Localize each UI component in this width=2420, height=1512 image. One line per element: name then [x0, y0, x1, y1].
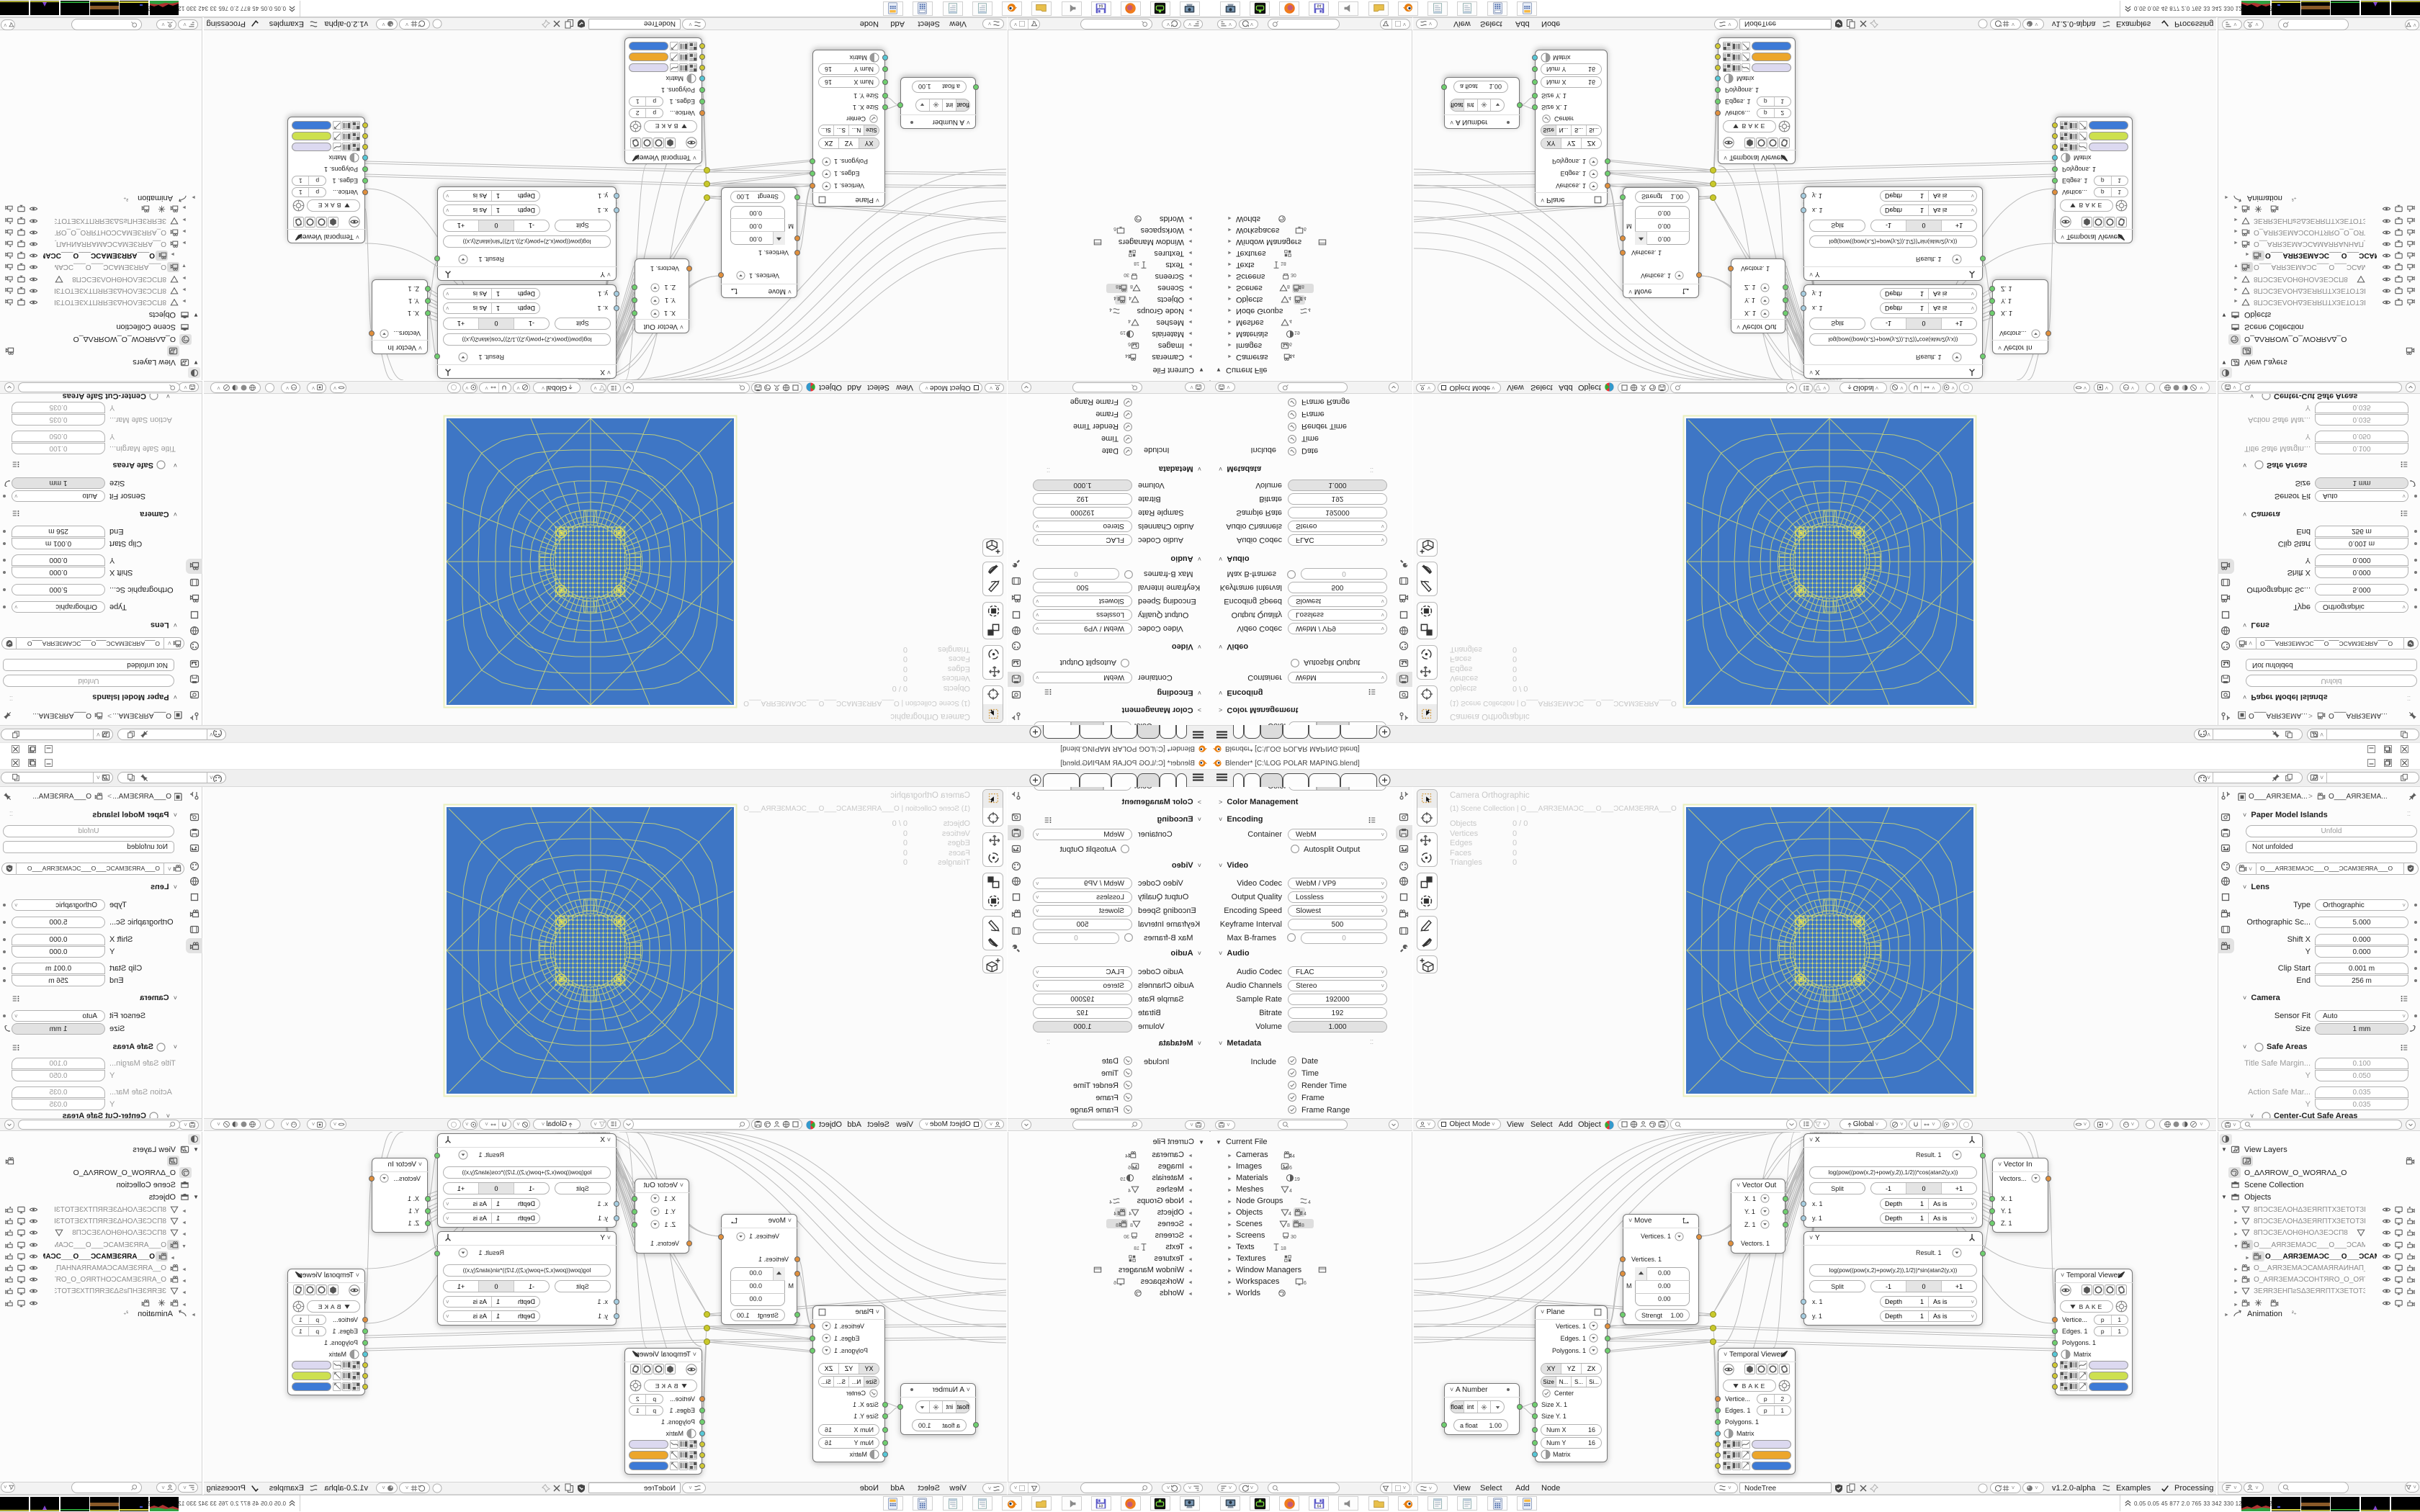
svg-text:64: 64: [1099, 1504, 1103, 1508]
svg-text:64: 64: [1317, 1504, 1321, 1508]
svg-text:64: 64: [1099, 4, 1103, 8]
svg-text:64: 64: [1317, 4, 1321, 8]
